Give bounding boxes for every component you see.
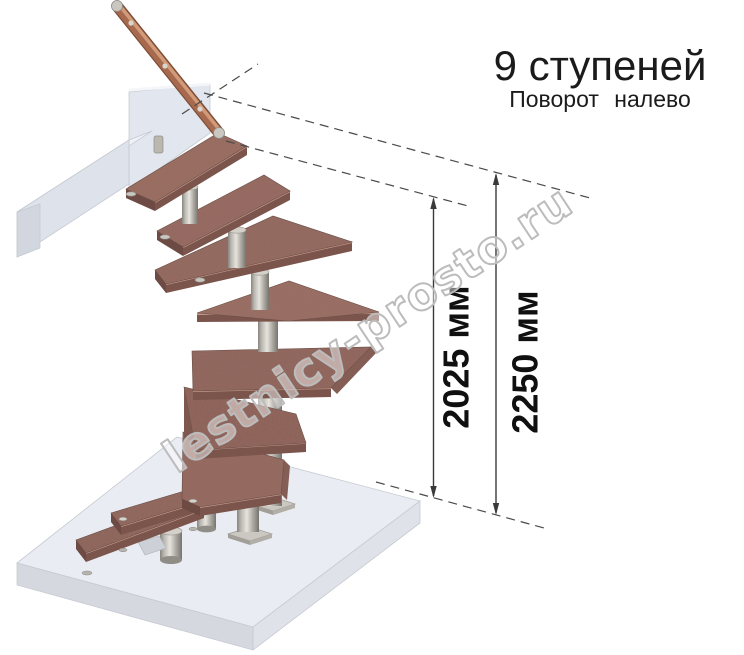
scene-svg: 2025 мм 2250 мм 9 ступеней Поворот налев…	[0, 0, 744, 655]
dimension-label-2250: 2250 мм	[505, 290, 546, 433]
column-segment	[251, 269, 269, 310]
title-block: 9 ступеней Поворот налево	[494, 42, 707, 112]
handrail-end-cap	[112, 1, 123, 12]
rail-connector	[197, 106, 202, 111]
staircase-product-diagram: 2025 мм 2250 мм 9 ступеней Поворот налев…	[0, 0, 744, 655]
rail-connector	[162, 63, 167, 68]
rail-connector	[128, 20, 133, 25]
page-title: 9 ступеней	[494, 42, 707, 89]
page-subtitle: Поворот налево	[509, 86, 691, 112]
column-segment	[228, 227, 246, 268]
handrail-end-cap	[214, 128, 225, 139]
landing-beam-end	[17, 204, 40, 257]
rail-bracket	[154, 136, 163, 153]
